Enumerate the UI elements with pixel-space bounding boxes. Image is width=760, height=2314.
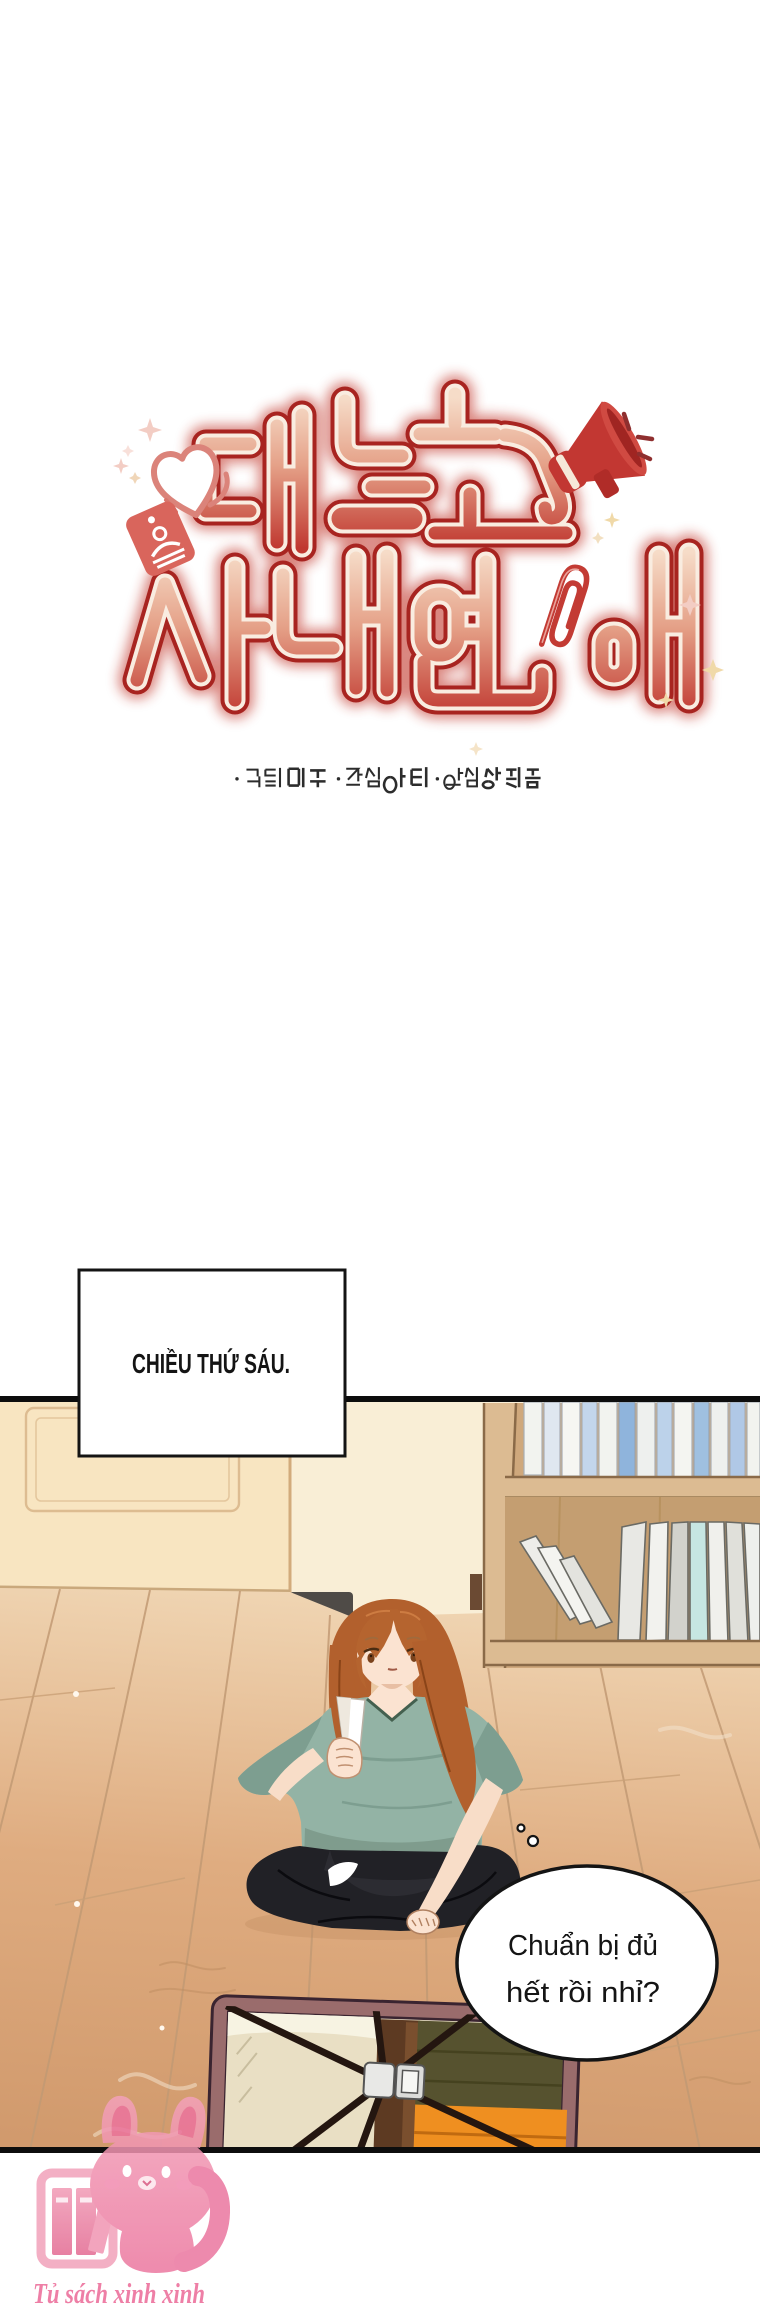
svg-text:Tủ sách xinh xinh: Tủ sách xinh xinh	[33, 2278, 205, 2310]
svg-text:Chuẩn bị đủ: Chuẩn bị đủ	[508, 1930, 658, 1962]
svg-text:hết rồi nhỉ?: hết rồi nhỉ?	[506, 1977, 660, 2009]
svg-text:CHIỀU THỨ SÁU.: CHIỀU THỨ SÁU.	[132, 1348, 290, 1379]
